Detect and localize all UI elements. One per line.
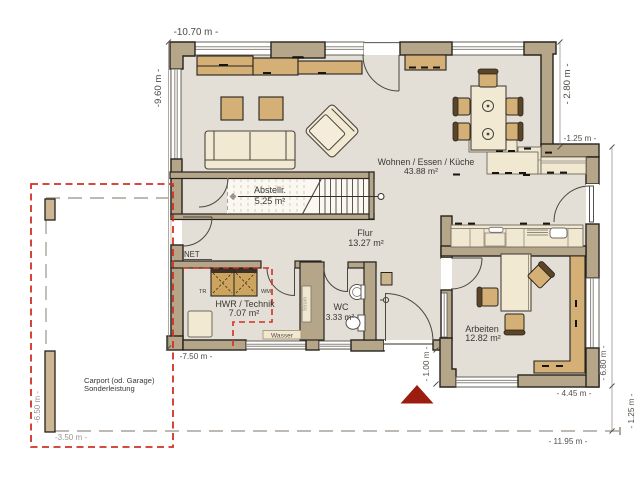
svg-text:-1.25 m -: -1.25 m - — [564, 134, 597, 143]
svg-text:Sonderleistung: Sonderleistung — [84, 384, 135, 393]
svg-text:- 4.45 m -: - 4.45 m - — [556, 389, 591, 398]
svg-text:-6.50 m -: -6.50 m - — [33, 391, 42, 423]
svg-text:Flur: Flur — [357, 228, 373, 238]
svg-text:12.82 m²: 12.82 m² — [465, 333, 501, 343]
svg-text:-7.50 m -: -7.50 m - — [180, 352, 213, 361]
svg-text:43.88 m²: 43.88 m² — [404, 166, 438, 176]
svg-text:NET: NET — [184, 250, 200, 259]
svg-text:- 1.00 m -: - 1.00 m - — [422, 346, 431, 381]
svg-text:5.25 m²: 5.25 m² — [255, 196, 286, 206]
svg-text:Strom: Strom — [303, 296, 309, 311]
svg-text:3.33 m²: 3.33 m² — [326, 312, 355, 322]
svg-text:7.07 m²: 7.07 m² — [229, 308, 260, 318]
svg-text:-9.60 m -: -9.60 m - — [153, 69, 164, 107]
svg-text:WC: WC — [334, 302, 349, 312]
svg-text:WM: WM — [261, 289, 271, 295]
svg-text:-3.50 m -: -3.50 m - — [55, 433, 87, 442]
svg-text:Wasser: Wasser — [271, 332, 294, 339]
svg-text:- 6.80 m -: - 6.80 m - — [599, 345, 608, 380]
svg-text:13.27 m²: 13.27 m² — [348, 238, 384, 248]
svg-text:Abstellr.: Abstellr. — [254, 185, 286, 195]
svg-text:TR: TR — [199, 289, 206, 295]
svg-text:- 2.80 m -: - 2.80 m - — [562, 63, 573, 104]
svg-text:- 1.25 m -: - 1.25 m - — [627, 393, 636, 428]
svg-text:-10.70 m -: -10.70 m - — [174, 27, 219, 38]
svg-text:- 11.95 m -: - 11.95 m - — [549, 437, 588, 446]
